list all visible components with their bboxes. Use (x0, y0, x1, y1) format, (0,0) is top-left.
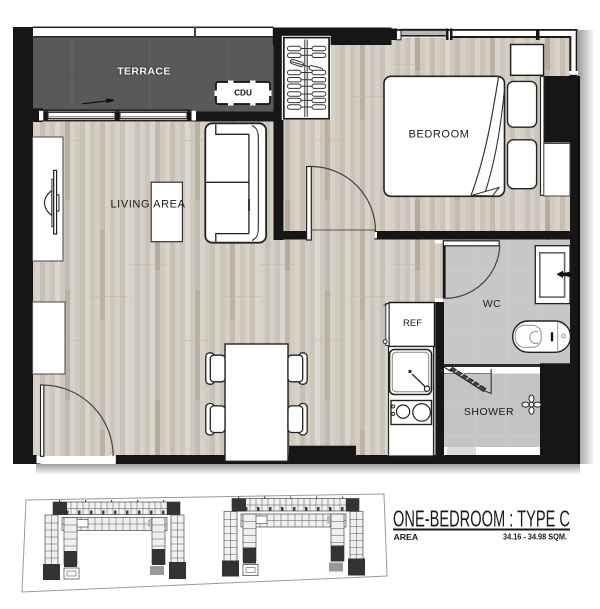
svg-text:ONE-BEDROOM : TYPE C: ONE-BEDROOM : TYPE C (393, 506, 570, 532)
svg-text:WC: WC (483, 298, 502, 310)
svg-text:AREA: AREA (394, 532, 419, 542)
svg-text:REF: REF (403, 318, 422, 329)
svg-text:LIVING AREA: LIVING AREA (110, 199, 185, 211)
svg-text:SHOWER: SHOWER (464, 406, 514, 418)
svg-text:34.16 - 34.98 SQM.: 34.16 - 34.98 SQM. (503, 532, 567, 542)
svg-text:TERRACE: TERRACE (117, 66, 171, 78)
svg-text:BEDROOM: BEDROOM (408, 129, 469, 141)
svg-text:CDU: CDU (234, 89, 252, 98)
